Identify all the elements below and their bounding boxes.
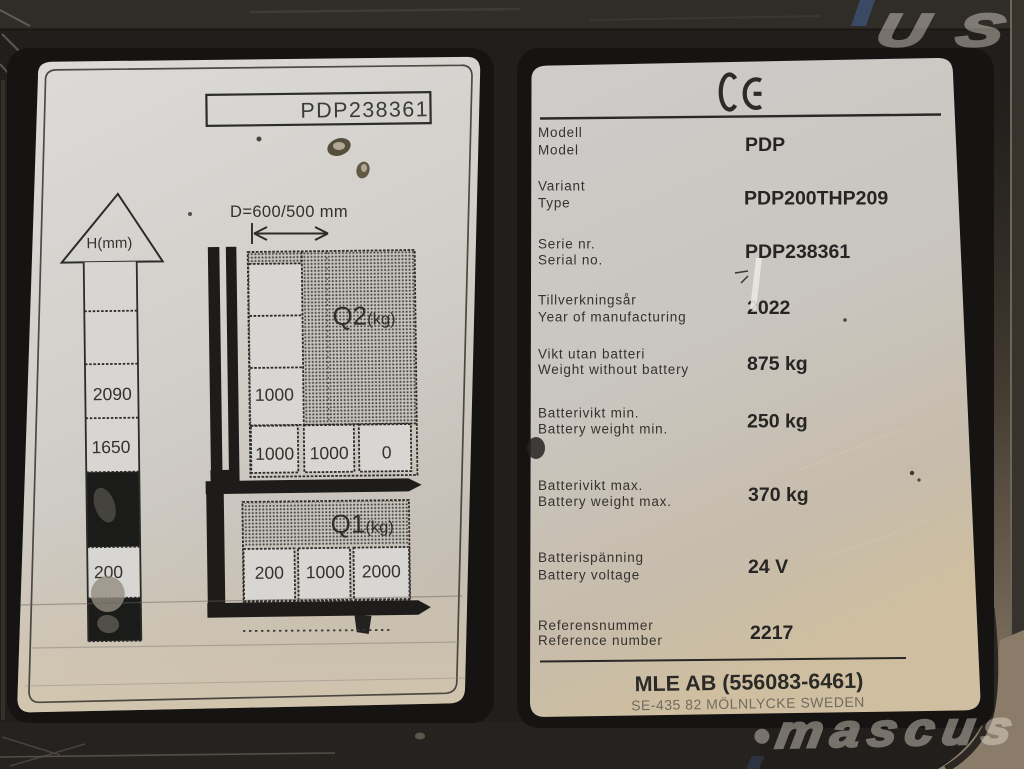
- svg-text:0: 0: [382, 442, 392, 462]
- svg-text:Battery voltage: Battery voltage: [538, 568, 640, 583]
- svg-text:MLE AB (556083-6461): MLE AB (556083-6461): [634, 669, 863, 697]
- svg-text:Model: Model: [538, 143, 579, 158]
- svg-text:250 kg: 250 kg: [747, 411, 808, 433]
- svg-text:PDP238361: PDP238361: [300, 97, 429, 123]
- svg-text:1650: 1650: [91, 437, 130, 457]
- svg-text:24 V: 24 V: [748, 556, 788, 578]
- svg-text:1000: 1000: [306, 562, 345, 582]
- svg-text:370 kg: 370 kg: [748, 484, 809, 506]
- svg-text:Batterivikt max.: Batterivikt max.: [538, 478, 643, 493]
- svg-text:Batterivikt min.: Batterivikt min.: [538, 406, 639, 421]
- svg-text:PDP: PDP: [745, 134, 785, 156]
- svg-text:Serial no.: Serial no.: [538, 253, 603, 268]
- svg-text:mascus: mascus: [773, 701, 1024, 758]
- svg-text:Reference number: Reference number: [538, 633, 663, 648]
- svg-text:Vikt utan batteri: Vikt utan batteri: [538, 347, 645, 362]
- svg-text:Year of manufacturing: Year of manufacturing: [538, 310, 686, 325]
- svg-text:Weight without battery: Weight without battery: [538, 362, 689, 377]
- svg-text:Tillverkningsår: Tillverkningsår: [538, 293, 637, 308]
- svg-text:Modell: Modell: [538, 125, 583, 140]
- svg-text:1000: 1000: [255, 443, 294, 463]
- svg-text:D=600/500 mm: D=600/500 mm: [230, 203, 348, 221]
- svg-text:US: US: [872, 4, 1024, 56]
- svg-text:H(mm): H(mm): [86, 235, 132, 253]
- svg-text:200: 200: [255, 563, 285, 583]
- svg-text:PDP200THP209: PDP200THP209: [744, 188, 888, 210]
- svg-text:1000: 1000: [255, 384, 294, 404]
- svg-text:875 kg: 875 kg: [747, 353, 808, 375]
- svg-text:Battery weight max.: Battery weight max.: [538, 494, 672, 509]
- svg-text:Variant: Variant: [538, 179, 585, 194]
- svg-text:2217: 2217: [750, 622, 793, 644]
- svg-text:Serie nr.: Serie nr.: [538, 237, 595, 252]
- svg-text:Referensnummer: Referensnummer: [538, 618, 654, 633]
- svg-text:1000: 1000: [310, 443, 349, 463]
- svg-text:2000: 2000: [362, 561, 401, 581]
- svg-text:Batterispänning: Batterispänning: [538, 550, 644, 565]
- svg-text:Battery weight min.: Battery weight min.: [538, 422, 668, 437]
- svg-text:Type: Type: [538, 196, 570, 211]
- svg-text:2090: 2090: [93, 384, 132, 404]
